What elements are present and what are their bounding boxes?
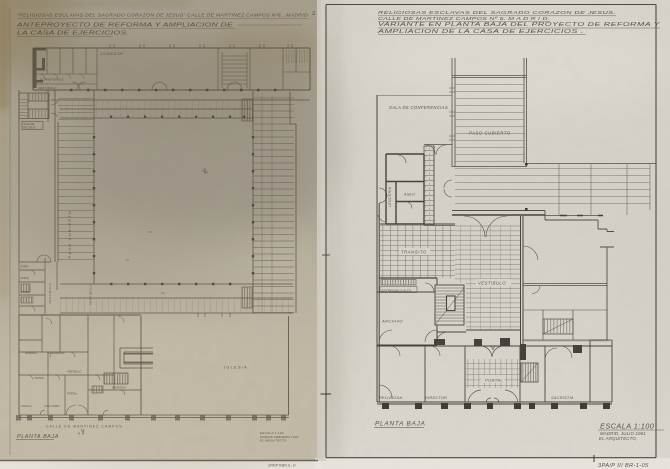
svg-text:DORMITORIOS: DORMITORIOS bbox=[40, 78, 64, 82]
svg-text:CALLE DE MARTINEZ CAMPOS Nº 6.: CALLE DE MARTINEZ CAMPOS Nº 6. M A D R I… bbox=[378, 16, 550, 21]
svg-text:TRANSITO: TRANSITO bbox=[401, 250, 427, 255]
svg-text:RELIGIOSA: RELIGIOSA bbox=[379, 396, 402, 400]
svg-text:OFICIO: OFICIO bbox=[21, 277, 29, 280]
svg-text:ROPERIA: ROPERIA bbox=[25, 351, 37, 355]
svg-text:COCINA: COCINA bbox=[21, 291, 31, 294]
svg-text:RECIBIDOR: RECIBIDOR bbox=[50, 351, 65, 355]
svg-text:DESPA: DESPA bbox=[21, 266, 29, 269]
svg-text:LOCUTORIO: LOCUTORIO bbox=[44, 404, 59, 408]
svg-text:VESTIBULO: VESTIBULO bbox=[478, 281, 506, 286]
svg-text:ANTEPROYECTO DE REFORMA Y AMPL: ANTEPROYECTO DE REFORMA Y AMPLIACION DE bbox=[16, 22, 233, 28]
svg-text:VESTIBULO: VESTIBULO bbox=[67, 370, 82, 374]
svg-text:SALA DE CONFERENCIAS: SALA DE CONFERENCIAS bbox=[389, 105, 448, 110]
svg-text:EL ARQUITECTO: EL ARQUITECTO bbox=[260, 439, 287, 443]
svg-text:PLANTA BAJA: PLANTA BAJA bbox=[375, 421, 426, 428]
svg-text:CALLE DE MARTINEZ CAMPOS: CALLE DE MARTINEZ CAMPOS bbox=[46, 425, 123, 429]
svg-text:LENCERIA: LENCERIA bbox=[388, 186, 392, 207]
svg-text:SPA/P.II/BR.IL.-D: SPA/P.II/BR.IL.-D bbox=[268, 464, 296, 468]
svg-text:ASEO: ASEO bbox=[403, 193, 415, 197]
svg-text:VARIANTE EN PLANTA BAJA DEL PR: VARIANTE EN PLANTA BAJA DEL PROYECTO DE … bbox=[378, 22, 660, 28]
svg-text:PASO CUBIERTO: PASO CUBIERTO bbox=[469, 131, 511, 136]
svg-text:PLANTA BAJA: PLANTA BAJA bbox=[17, 434, 59, 440]
svg-text:VESTIBULO: VESTIBULO bbox=[48, 282, 52, 304]
svg-text:PASO CUBIERTO: PASO CUBIERTO bbox=[68, 210, 72, 258]
svg-text:EL ARQUITECTO,: EL ARQUITECTO, bbox=[599, 436, 637, 441]
svg-text:CAPILLA: CAPILLA bbox=[21, 404, 32, 408]
svg-text:PORTAL: PORTAL bbox=[485, 378, 503, 383]
svg-text:SACRISTIA: SACRISTIA bbox=[112, 386, 126, 390]
svg-text:RECIBOS: RECIBOS bbox=[24, 126, 36, 130]
svg-text:LA CASA DE EJERCICIOS.: LA CASA DE EJERCICIOS. bbox=[17, 31, 129, 37]
svg-text:IGLESIA: IGLESIA bbox=[224, 365, 248, 370]
svg-text:VESTIBULO: VESTIBULO bbox=[89, 283, 93, 305]
svg-text:ESCALA 1:100: ESCALA 1:100 bbox=[600, 422, 655, 431]
svg-text:3PA/P II/ BR-1-05: 3PA/P II/ BR-1-05 bbox=[598, 463, 649, 469]
svg-text:"RELIGIOSAS ESCLAVAS DEL SAGRA: "RELIGIOSAS ESCLAVAS DEL SAGRADO CORAZON… bbox=[17, 13, 308, 18]
svg-text:DIRECTOR: DIRECTOR bbox=[425, 396, 447, 400]
svg-text:PORTAL: PORTAL bbox=[67, 392, 78, 396]
svg-text:SACRISTIA: SACRISTIA bbox=[551, 396, 574, 400]
svg-text:VISITAS: VISITAS bbox=[34, 376, 44, 380]
svg-text:ARCHIVO: ARCHIVO bbox=[381, 319, 403, 324]
svg-text:SALA DE: SALA DE bbox=[24, 122, 35, 126]
svg-text:N: N bbox=[78, 432, 80, 436]
svg-text:VESTIBULO: VESTIBULO bbox=[38, 86, 57, 90]
svg-text:ENTRESUELO ALTO.: ENTRESUELO ALTO. bbox=[382, 288, 413, 292]
svg-text:AMPLIACION DE LA CASA DE EJER: AMPLIACION DE LA CASA DE EJERCICIOS . bbox=[376, 29, 584, 35]
svg-text:COMEDOR: COMEDOR bbox=[100, 52, 124, 56]
